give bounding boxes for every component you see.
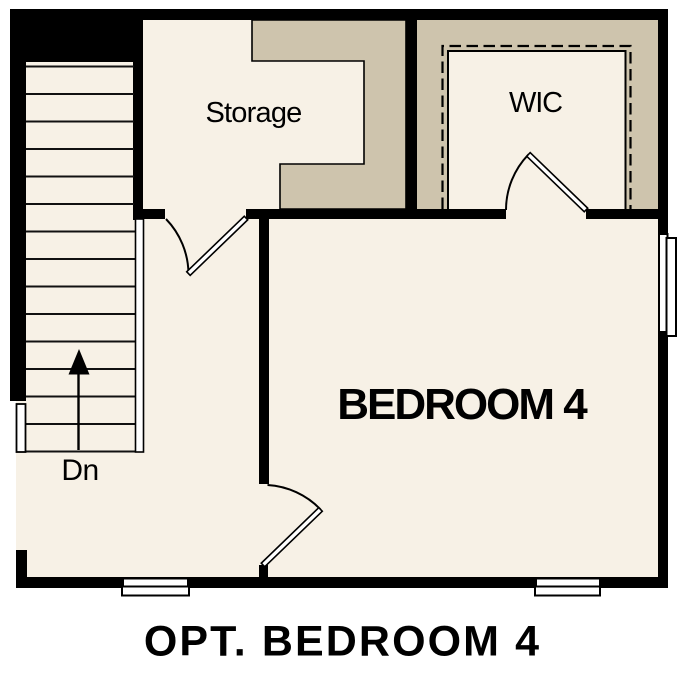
svg-text:OPT. BEDROOM 4: OPT. BEDROOM 4 <box>144 618 541 666</box>
svg-text:BEDROOM 4: BEDROOM 4 <box>337 380 588 429</box>
svg-text:Storage: Storage <box>206 97 302 129</box>
svg-text:WIC: WIC <box>509 87 562 119</box>
svg-text:Dn: Dn <box>61 454 98 487</box>
